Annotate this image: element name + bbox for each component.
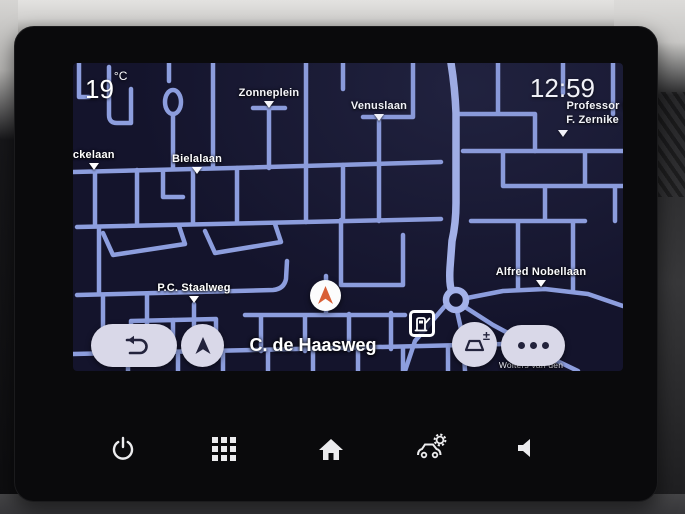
- back-arrow-icon: [117, 332, 151, 359]
- street-marker: [192, 167, 202, 174]
- apps-button[interactable]: [204, 429, 244, 469]
- temperature-value: 19: [85, 74, 114, 104]
- map-zoom-button[interactable]: ±: [452, 322, 497, 367]
- infotainment-unit: Zonneplein Venuslaan nckelaan Bielalaan …: [14, 26, 658, 502]
- temperature-unit: °C: [114, 69, 127, 83]
- navigation-arrow-icon: [310, 280, 341, 311]
- navigation-arrow-icon: [190, 333, 216, 359]
- power-icon: [110, 435, 136, 461]
- home-button[interactable]: [311, 429, 351, 469]
- street-marker: [89, 163, 99, 170]
- power-button[interactable]: [103, 428, 143, 468]
- plus-minus-label: ±: [483, 329, 490, 342]
- street-label-bielalaan: Bielalaan: [172, 153, 222, 165]
- street-marker: [264, 101, 274, 108]
- recenter-button[interactable]: [181, 324, 224, 367]
- car-gear-icon: [415, 433, 447, 461]
- street-marker: [189, 296, 199, 303]
- street-marker: [536, 280, 546, 287]
- current-street-label: C. de Haasweg: [249, 335, 376, 356]
- car-dashboard: Zonneplein Venuslaan nckelaan Bielalaan …: [0, 0, 685, 514]
- street-marker: [374, 114, 384, 121]
- fuel-pump-icon: [413, 314, 431, 333]
- navigation-map-screen[interactable]: Zonneplein Venuslaan nckelaan Bielalaan …: [73, 63, 623, 371]
- speaker-icon: [514, 436, 538, 460]
- street-label-venuslaan: Venuslaan: [351, 100, 407, 112]
- home-icon: [317, 436, 345, 462]
- apps-grid-icon: [211, 436, 237, 462]
- vehicle-settings-button[interactable]: [411, 427, 451, 467]
- street-label-alfred-nobellaan: Alfred Nobellaan: [496, 266, 587, 278]
- volume-button[interactable]: [506, 428, 546, 468]
- temperature-display: 19°C: [85, 69, 127, 105]
- street-label-nckelaan: nckelaan: [73, 149, 115, 161]
- street-label-f-zernike: F. Zernike: [566, 114, 619, 126]
- street-label-pc-staalweg: P.C. Staalweg: [157, 282, 230, 294]
- back-button[interactable]: [91, 324, 177, 367]
- street-marker: [558, 130, 568, 137]
- ellipsis-icon: [518, 342, 549, 349]
- vehicle-position-marker: [310, 280, 341, 311]
- street-label-zonneplein: Zonneplein: [239, 87, 300, 99]
- more-options-button[interactable]: [501, 325, 565, 366]
- clock-display: 12:59: [530, 73, 595, 104]
- fuel-station-poi[interactable]: [409, 310, 435, 337]
